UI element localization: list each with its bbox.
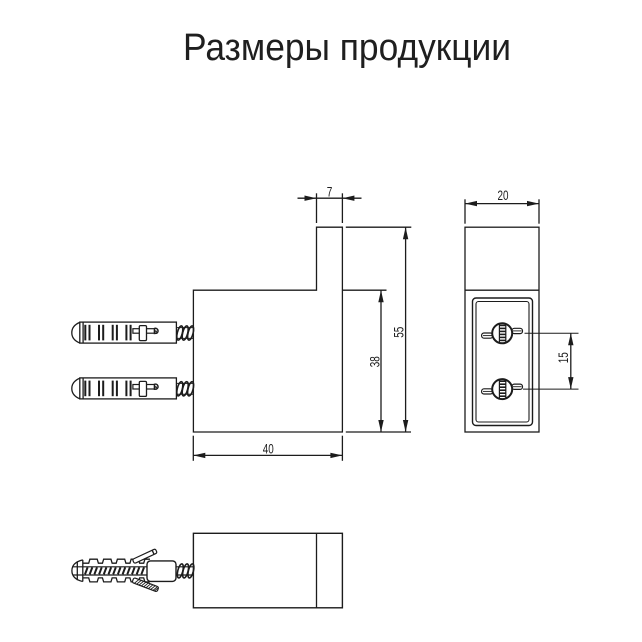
svg-text:38: 38 (367, 356, 383, 367)
svg-text:15: 15 (555, 352, 571, 363)
svg-text:40: 40 (263, 441, 274, 457)
svg-text:20: 20 (498, 187, 509, 203)
svg-text:Размеры продукции: Размеры продукции (183, 27, 511, 69)
svg-text:7: 7 (327, 184, 333, 200)
svg-text:55: 55 (391, 327, 407, 338)
